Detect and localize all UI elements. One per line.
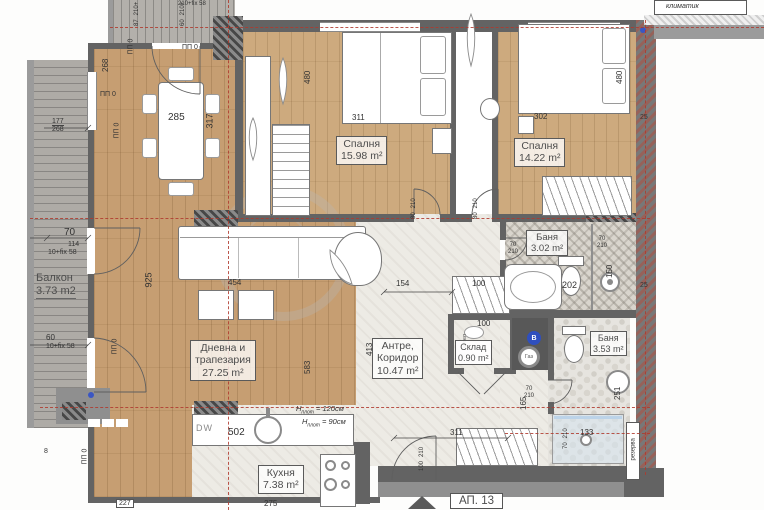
storage-area: 0.90 m²	[458, 353, 489, 364]
door-bath2s-w: 70	[563, 442, 569, 449]
dim-window-60: 60	[46, 334, 55, 342]
dim-fraction: 177 268	[52, 118, 64, 133]
wall-bottom-thick	[378, 466, 638, 482]
pillow	[602, 28, 626, 64]
room-label-bath2: Баня 3.53 m²	[590, 331, 627, 356]
dim-sink-251: 251	[614, 376, 622, 400]
dim-bath1-202: 202	[562, 281, 577, 290]
apartment-number: АП. 13	[459, 495, 494, 507]
door-bath2-h: 210	[524, 393, 534, 400]
dim-wall-25b: 25	[640, 282, 648, 289]
dim-frac-bottom: 268	[52, 125, 64, 133]
bathtub-basin	[510, 271, 556, 303]
kitchen-tap	[266, 408, 270, 417]
pp0-marker: ПП 0	[114, 117, 121, 139]
sofa-back-line	[180, 237, 364, 238]
bedroom2-area: 14.22 m²	[519, 152, 560, 164]
dim-frac-top: 177	[52, 118, 64, 125]
dim-top-fix: 210+fix 58	[178, 1, 206, 8]
room-label-storage: Склад 0.90 m²	[455, 340, 492, 365]
dining-chair	[168, 182, 194, 196]
dim-door-8: 8	[44, 448, 48, 455]
cabinet-bedroom1	[245, 56, 271, 216]
nightstand-bedroom1	[432, 128, 452, 154]
door-bed2-h: 210	[473, 198, 479, 208]
pp0-marker: ПП 0	[112, 333, 119, 355]
note2-val: = 90см	[320, 417, 346, 426]
wall-bath1-bottom	[500, 310, 638, 318]
toilet-bath2-bowl	[564, 335, 584, 363]
window-left-living	[87, 72, 97, 130]
apartment-label: АП. 13	[450, 493, 503, 509]
floor-plan: В Газ котел	[0, 0, 764, 510]
pp0-marker: ПП 0	[100, 91, 116, 98]
dim-window-fix-b: 10+fix 58	[46, 343, 75, 350]
water-heater-label: В	[531, 335, 536, 342]
door-label-bedroom1: 80 210	[411, 183, 417, 219]
balcony-cabinet-drawer	[116, 419, 128, 427]
door-bed1-w: 80	[411, 212, 417, 219]
dim-hall-height: 413	[366, 332, 374, 356]
axis-line-v2	[645, 20, 646, 475]
hall-name-2: Коридор	[377, 352, 418, 364]
door-label-entrance: 100 210	[419, 431, 425, 471]
dining-chair	[142, 138, 157, 158]
dim-storage-100: 100	[477, 320, 490, 328]
gas-meter-label: Газ	[525, 354, 533, 360]
bedroom2-name: Спалня	[519, 140, 560, 152]
dim-window-114: 114	[68, 241, 79, 248]
dim-top-87-w: 87	[134, 19, 140, 26]
pillow	[420, 78, 446, 116]
room-label-bath1: Баня 3.02 m²	[526, 230, 568, 256]
door-label-bath2: 70 210	[524, 386, 534, 399]
door-bath2s-h: 210	[563, 428, 569, 438]
dim-bed1-width: 311	[352, 114, 365, 122]
toilet-bath2-tank	[562, 326, 586, 335]
dim-shower-133: 133	[580, 429, 593, 437]
balcony-top-parapet	[108, 0, 113, 43]
room-label-kitchen: Кухня 7.38 m²	[258, 465, 304, 494]
counter-height-note-2: Hплот = 90см	[302, 417, 346, 429]
balcony-cabinet-hatch	[62, 402, 86, 420]
door-gap-balcony2	[87, 338, 95, 392]
note1-sub: плот	[301, 410, 314, 416]
balcony-left-floor	[34, 60, 88, 428]
door-bath1-w: 70	[508, 242, 518, 249]
dim-top-87: 87 210+	[134, 0, 140, 26]
pp0-marker: ПП 0	[82, 443, 89, 465]
dim-living-span: 583	[304, 350, 312, 374]
wall-bath1-left-a	[500, 222, 506, 240]
living-area: 27.25 m²	[195, 367, 251, 379]
counter-height-note-1: Hплот = 120см	[296, 404, 344, 416]
dim-kitchen-275: 275	[264, 500, 277, 508]
door-label-bath2-shower: 70 210	[563, 413, 569, 449]
closet-shelf	[480, 98, 500, 120]
stove-burner	[341, 461, 350, 470]
door-bath1s-h: 210	[597, 243, 607, 250]
door-bath1s-w: 70	[597, 236, 607, 243]
wall-bath2-left-a	[548, 318, 554, 380]
dim-bed2-width: 302	[534, 113, 547, 121]
sofa-cushion-line	[238, 238, 239, 278]
bedroom1-area: 15.98 m²	[341, 150, 382, 162]
storage-name: Склад	[458, 342, 489, 353]
bath1-area: 3.02 m²	[531, 243, 563, 254]
dim-window-fix-a: 10+fix 58	[48, 249, 77, 256]
bath1-name: Баня	[531, 232, 563, 243]
room-label-balcony: Балкон 3.73 m2	[36, 272, 76, 299]
dim-hall-311: 311	[450, 429, 463, 437]
bath2-name: Баня	[593, 333, 624, 344]
dim-bed2-depth: 480	[616, 60, 624, 84]
sofa-cushion-line	[298, 238, 299, 278]
balcony-area: 3.73 m2	[36, 285, 76, 298]
bed-fold-line	[380, 33, 381, 123]
room-label-living: Дневна и трапезария 27.25 m²	[190, 340, 256, 381]
note1-val: = 120см	[314, 404, 344, 413]
door-bed1-h: 210	[411, 198, 417, 208]
column-kitchen-axis	[194, 401, 238, 415]
kitchen-area: 7.38 m²	[263, 479, 299, 491]
nightstand-bedroom2	[518, 116, 534, 134]
door-label-bedroom2: 80 210	[473, 183, 479, 219]
balcony-name: Балкон	[36, 272, 76, 285]
pp0-marker: ПП 0	[182, 44, 198, 51]
bedroom1-name: Спалня	[341, 138, 382, 150]
dim-kitchen-227: 227	[116, 499, 134, 508]
dim-sink-502: 502	[228, 428, 245, 438]
dim-sofa-span: 454	[228, 279, 241, 287]
wall-living-bedroom1	[235, 49, 243, 222]
dim-hall-width: 154	[396, 280, 409, 288]
kitchen-name: Кухня	[263, 467, 299, 479]
dim-dining-depth: 317	[206, 105, 215, 129]
axis-line-h1	[110, 27, 764, 28]
axis-line-h4	[505, 433, 650, 434]
balcony-cabinet-drawer	[102, 419, 114, 427]
stove-burner	[325, 460, 336, 471]
coffee-table	[238, 290, 274, 320]
water-heater-icon: В	[527, 331, 541, 345]
living-name-1: Дневна и	[195, 342, 251, 354]
pp0-marker: ПП 0	[128, 33, 135, 55]
stove-burner	[341, 480, 350, 489]
room-label-bedroom2: Спалня 14.22 m²	[514, 138, 565, 167]
dim-dining-width: 285	[168, 113, 185, 123]
door-entrance-w: 100	[419, 461, 425, 471]
dining-table	[158, 82, 204, 180]
balcony-left-parapet	[27, 60, 34, 428]
pillow	[420, 36, 446, 74]
hall-name-1: Антре,	[377, 340, 418, 352]
wall-bath2-left-b	[548, 402, 554, 414]
armchair	[334, 232, 382, 286]
living-name-2: трапезария	[195, 354, 251, 366]
door-entrance-h: 210	[419, 447, 425, 457]
dishwasher-label: DW	[196, 424, 213, 433]
dim-window-70: 70	[64, 228, 75, 238]
bath2-area: 3.53 m²	[593, 344, 624, 355]
dining-chair	[142, 94, 157, 114]
dim-living-height: 925	[145, 258, 154, 288]
wall-right-shaft	[636, 20, 656, 472]
wardrobe-bedroom1	[272, 124, 310, 216]
hall-area: 10.47 m²	[377, 365, 418, 377]
toilet-bath1-tank	[558, 256, 584, 266]
door-gap-balcony1	[87, 228, 95, 274]
dim-balc-top-depth: 268	[102, 52, 110, 72]
wall-bottom-band	[378, 482, 664, 497]
door-bath2-w: 70	[524, 386, 534, 393]
dim-top-60-w: 60	[180, 19, 186, 26]
gas-meter-icon: Газ	[518, 346, 540, 368]
wall-closet-bedroom2	[492, 20, 498, 222]
room-label-hall: Антре, Коридор 10.47 m²	[372, 338, 423, 379]
note2-sub: плот	[307, 423, 320, 429]
wall-bath1-partition	[591, 224, 593, 310]
dim-wall-25a: 25	[640, 114, 648, 121]
axis-line-h3	[40, 407, 650, 408]
door-bed2-w: 80	[473, 212, 479, 219]
stove-burner	[324, 478, 337, 491]
balcony-marker-dot	[88, 392, 94, 398]
reserve-label: резерва	[631, 427, 638, 471]
axis-line-h2	[30, 218, 650, 219]
dining-chair	[205, 138, 220, 158]
washing-machine-dot	[607, 279, 613, 285]
wardrobe-bedroom2	[542, 176, 632, 216]
dim-top-87-h: 210+	[134, 2, 140, 16]
wall-kitchen-right	[354, 442, 370, 504]
door-label-bath1-shower: 70 210	[597, 236, 607, 249]
door-label-bath1: 70 210	[508, 242, 518, 255]
room-label-bedroom1: Спалня 15.98 m²	[336, 136, 387, 165]
wall-storage-bottom-a	[448, 368, 464, 374]
door-bath1-h: 210	[508, 249, 518, 256]
balcony-cabinet-drawer	[88, 419, 100, 427]
dim-bed1-depth: 480	[304, 60, 312, 84]
dim-bath1-150: 150	[606, 254, 614, 278]
ac-hatch-strip	[644, 15, 764, 25]
kitchen-sink	[254, 416, 282, 444]
dim-ward-100: 100	[472, 280, 485, 288]
entrance-arrow-icon	[408, 496, 436, 509]
dining-chair	[168, 67, 194, 81]
ac-label: климатик	[666, 3, 699, 10]
wall-storage-left	[448, 314, 454, 374]
